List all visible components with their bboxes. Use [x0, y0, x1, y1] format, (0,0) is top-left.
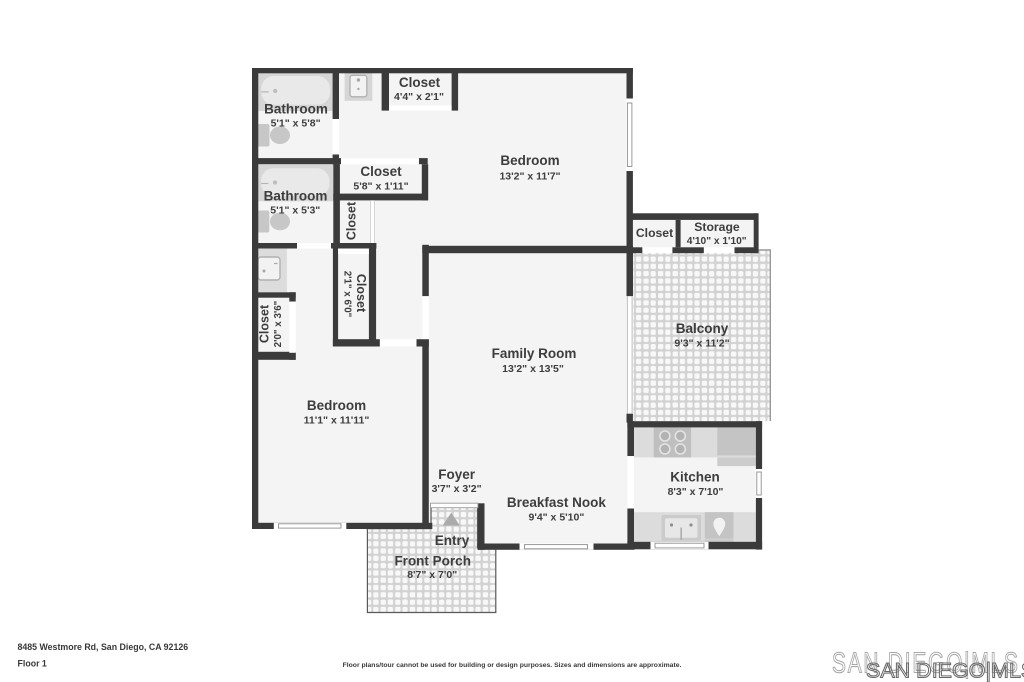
svg-text:Front Porch: Front Porch	[394, 554, 471, 569]
svg-text:Balcony: Balcony	[676, 321, 729, 336]
svg-text:13'2" x 13'5": 13'2" x 13'5"	[502, 363, 564, 375]
svg-text:11'1" x 11'11": 11'1" x 11'11"	[304, 415, 370, 427]
svg-text:Closet: Closet	[360, 164, 402, 179]
svg-text:Floor plans/tour cannot be use: Floor plans/tour cannot be used for buil…	[343, 662, 682, 669]
svg-text:2'0" x 3'6": 2'0" x 3'6"	[273, 301, 284, 348]
svg-text:Family Room: Family Room	[492, 346, 577, 361]
svg-text:Closet: Closet	[258, 304, 272, 343]
svg-text:8'3" x 7'10": 8'3" x 7'10"	[668, 486, 724, 498]
svg-text:Bedroom: Bedroom	[500, 153, 559, 168]
svg-text:Floor 1: Floor 1	[18, 659, 47, 669]
svg-text:Closet: Closet	[345, 201, 359, 240]
svg-text:SAN DIEGO|MLS: SAN DIEGO|MLS	[866, 659, 1024, 682]
svg-text:8485 Westmore Rd, San Diego, C: 8485 Westmore Rd, San Diego, CA 92126	[18, 642, 189, 652]
svg-text:Closet: Closet	[354, 274, 368, 313]
svg-text:Breakfast Nook: Breakfast Nook	[507, 495, 607, 510]
svg-text:Storage: Storage	[694, 220, 740, 234]
svg-text:4'10" x 1'10": 4'10" x 1'10"	[687, 236, 747, 247]
svg-text:2'1" x 6'0": 2'1" x 6'0"	[342, 271, 353, 318]
svg-text:3'7" x 3'2": 3'7" x 3'2"	[432, 483, 482, 495]
svg-text:Bathroom: Bathroom	[264, 102, 328, 117]
svg-text:Bedroom: Bedroom	[307, 398, 366, 413]
svg-text:Closet: Closet	[399, 75, 441, 90]
svg-text:9'3" x 11'2": 9'3" x 11'2"	[674, 338, 729, 350]
svg-text:Foyer: Foyer	[438, 467, 476, 482]
svg-text:4'4" x 2'1": 4'4" x 2'1"	[394, 91, 444, 103]
svg-text:Kitchen: Kitchen	[670, 470, 720, 485]
svg-text:Closet: Closet	[636, 226, 673, 240]
svg-text:13'2" x 11'7": 13'2" x 11'7"	[499, 171, 560, 183]
svg-text:Entry: Entry	[435, 533, 470, 548]
svg-text:9'4" x 5'10": 9'4" x 5'10"	[528, 512, 584, 524]
svg-text:5'1" x 5'8": 5'1" x 5'8"	[271, 118, 321, 130]
svg-text:Bathroom: Bathroom	[264, 189, 328, 204]
svg-text:5'8" x 1'11": 5'8" x 1'11"	[353, 181, 408, 193]
svg-text:8'7" x 7'0": 8'7" x 7'0"	[407, 569, 457, 581]
svg-text:5'1" x 5'3": 5'1" x 5'3"	[270, 205, 320, 217]
